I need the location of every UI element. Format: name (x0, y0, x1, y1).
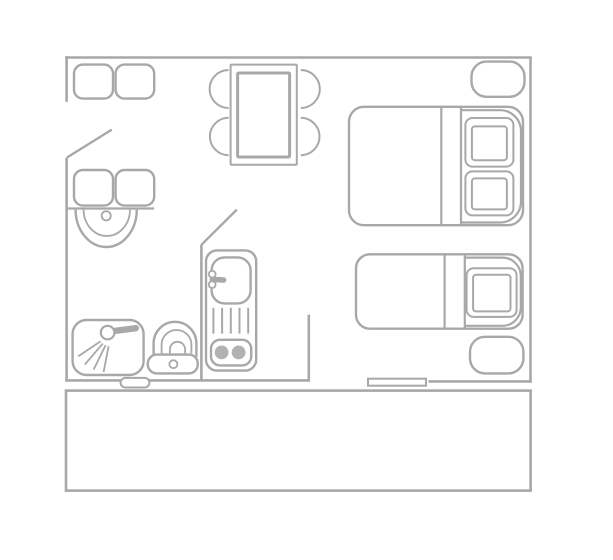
double-bed (349, 107, 523, 225)
bathroom-cabinet-left (74, 170, 113, 206)
kitchenette (206, 250, 256, 370)
entry-closet-left (74, 65, 113, 99)
entry-closet-right (116, 65, 155, 99)
single-bed (356, 254, 523, 328)
nightstand-top (472, 62, 525, 97)
kitchen-door-leaf (201, 210, 236, 245)
entry-door-leaf (67, 130, 112, 158)
shower (73, 320, 144, 375)
dining-chair-top-right (301, 70, 320, 108)
bathroom-cabinet-right (116, 170, 155, 206)
dining-chair-bottom-right (301, 118, 320, 155)
dining-chair-bottom-left (210, 118, 229, 155)
nightstand-bottom (470, 337, 523, 374)
balcony-window (368, 379, 426, 386)
dining-chair-top-left (210, 70, 229, 108)
washbasin (76, 210, 137, 247)
balcony-rail (66, 391, 531, 491)
floor-plan (0, 0, 613, 560)
bathroom-door-threshold (121, 378, 150, 388)
toilet (148, 322, 198, 374)
dining-table (231, 65, 297, 165)
floor-plan-svg (0, 0, 613, 560)
